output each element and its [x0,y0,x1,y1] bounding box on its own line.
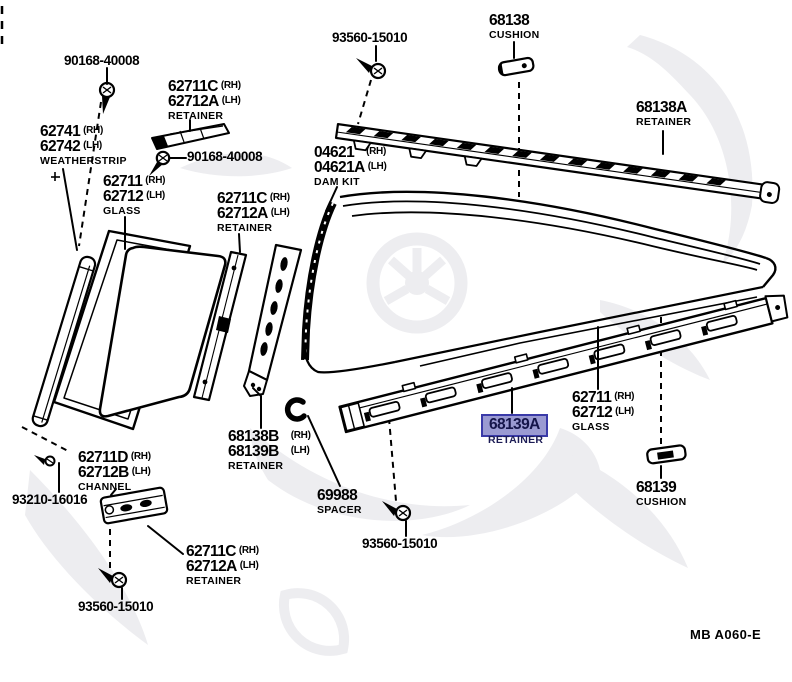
side-suffix: (RH) [366,146,386,157]
part-description: RETAINER [636,116,691,128]
part-number: 62712A [186,559,237,574]
side-suffix: (LH) [368,161,387,172]
retainer-62711c-top: 62711C(RH)62712A(LH)RETAINER [168,79,241,122]
parts-diagram-page: 90168-4000862711C(RH)62712A(LH)RETAINER9… [0,0,792,682]
retainer-68139a-selected[interactable]: 68139ARETAINER [489,417,548,446]
side-suffix: (RH) [291,430,311,441]
side-suffix: (RH) [145,175,165,186]
side-suffix: (LH) [291,445,310,456]
diagram-code: MB A060-E [690,627,761,642]
channel-62711d: 62711D(RH)62712B(LH)CHANNEL [78,450,151,493]
part-number: 93560-15010 [362,537,437,551]
side-suffix: (LH) [240,560,259,571]
part-number: 62712B [78,465,129,480]
part-number: 93560-15010 [332,31,407,45]
part-description: GLASS [103,205,165,217]
part-description: RETAINER [217,222,290,234]
part-number: 04621A [314,160,365,175]
part-number: 62712A [217,206,268,221]
weatherstrip-62741: 62741(RH)62742(LH)WEATHERSTRIP [40,124,127,167]
retainer-62711c-mid: 62711C(RH)62712A(LH)RETAINER [217,191,290,234]
screw-93560-15010-mid: 93560-15010 [362,537,437,552]
side-suffix: (RH) [83,125,103,136]
part-number: 68138 [489,13,529,28]
part-number: 68138B [228,429,279,444]
part-number: 62711D [78,450,128,465]
part-number: 04621 [314,145,354,160]
part-description: RETAINER [228,460,311,472]
bolt-90168-40008-top: 90168-40008 [64,54,139,69]
part-number: 62711 [103,174,142,189]
part-description: DAM KIT [314,176,387,188]
side-suffix: (LH) [132,466,151,477]
part-description: CUSHION [489,29,540,41]
part-number: 93210-16016 [12,493,87,507]
side-suffix: (LH) [83,140,102,151]
damkit-04621: 04621(RH)04621A(LH)DAM KIT [314,145,387,188]
part-number: 68138A [636,100,687,115]
cushion-68138: 68138CUSHION [489,13,540,41]
retainer-62711c-bottom: 62711C(RH)62712A(LH)RETAINER [186,544,259,587]
part-number: 90168-40008 [187,150,262,164]
part-number: 62742 [40,139,80,154]
side-suffix: (RH) [221,80,241,91]
side-suffix: (RH) [131,451,151,462]
part-number: 69988 [317,488,357,503]
glass-62711-right: 62711(RH)62712(LH)GLASS [572,390,634,433]
part-number: 62741 [40,124,80,139]
part-number: 90168-40008 [64,54,139,68]
part-description: GLASS [572,421,634,433]
labels-layer: 90168-4000862711C(RH)62712A(LH)RETAINER9… [0,0,792,682]
part-description: RETAINER [186,575,259,587]
screw-93560-15010-top: 93560-15010 [332,31,407,46]
spacer-69988: 69988SPACER [317,488,362,516]
part-description: RETAINER [168,110,241,122]
side-suffix: (LH) [615,406,634,417]
part-number: 62711C [217,191,267,206]
part-description: SPACER [317,504,362,516]
part-description: RETAINER [488,434,548,446]
side-suffix: (LH) [271,207,290,218]
part-number: 68139A [489,417,540,432]
side-suffix: (RH) [270,192,290,203]
part-description: CHANNEL [78,481,151,493]
part-number: 68139B [228,444,279,459]
screw-93560-15010-bottom: 93560-15010 [78,600,153,615]
part-number: 62711C [186,544,236,559]
part-number: 62711C [168,79,218,94]
part-number: 62712A [168,94,219,109]
part-number: 62712 [572,405,612,420]
side-suffix: (LH) [146,190,165,201]
part-number: 93560-15010 [78,600,153,614]
part-number: 68139 [636,480,676,495]
cushion-68139: 68139CUSHION [636,480,687,508]
retainer-68138b: 68138B(RH)68139B(LH)RETAINER [228,429,311,472]
side-suffix: (RH) [239,545,259,556]
part-description: CUSHION [636,496,687,508]
part-number: 62712 [103,189,143,204]
glass-62711-left: 62711(RH)62712(LH)GLASS [103,174,165,217]
retainer-68138a: 68138ARETAINER [636,100,691,128]
bolt-90168-40008-mid: 90168-40008 [187,150,262,165]
bolt-93210-16016: 93210-16016 [12,493,87,508]
side-suffix: (LH) [222,95,241,106]
part-number: 62711 [572,390,611,405]
part-description: WEATHERSTRIP [40,155,127,167]
side-suffix: (RH) [614,391,634,402]
